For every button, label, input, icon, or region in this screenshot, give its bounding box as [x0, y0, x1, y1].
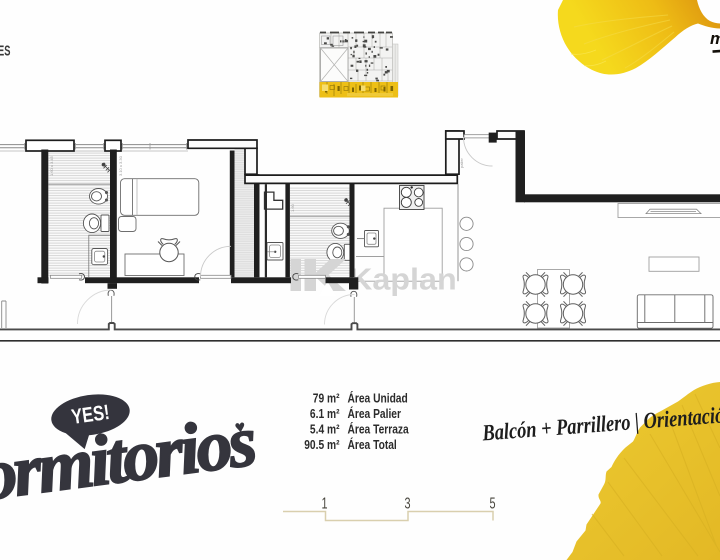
svg-text:m: m — [710, 29, 720, 48]
svg-text:Área Total: Área Total — [348, 438, 397, 452]
svg-text:1.60 x 3.45: 1.60 x 3.45 — [49, 155, 54, 176]
svg-text:ES: ES — [0, 42, 10, 59]
svg-text:Área Palier: Área Palier — [348, 407, 402, 421]
svg-text:3: 3 — [404, 494, 410, 512]
svg-text:Área Unidad: Área Unidad — [348, 391, 408, 405]
svg-text:6.1 m²: 6.1 m² — [310, 408, 340, 421]
svg-text:1: 1 — [321, 494, 327, 512]
svg-text:ormitorios: ormitorios — [0, 401, 259, 516]
svg-text:1.60: 1.60 — [290, 203, 295, 212]
svg-text:90.5 m²: 90.5 m² — [304, 439, 339, 452]
svg-text:Kaplan: Kaplan — [349, 262, 457, 296]
svg-text:3.10 x 3.30: 3.10 x 3.30 — [118, 155, 123, 176]
svg-text:5.4 m²: 5.4 m² — [310, 424, 340, 437]
svg-text:79 m²: 79 m² — [313, 393, 340, 406]
svg-text:5: 5 — [489, 494, 495, 512]
svg-text:palier: palier — [459, 158, 464, 168]
svg-text:Área Terraza: Área Terraza — [348, 422, 410, 436]
